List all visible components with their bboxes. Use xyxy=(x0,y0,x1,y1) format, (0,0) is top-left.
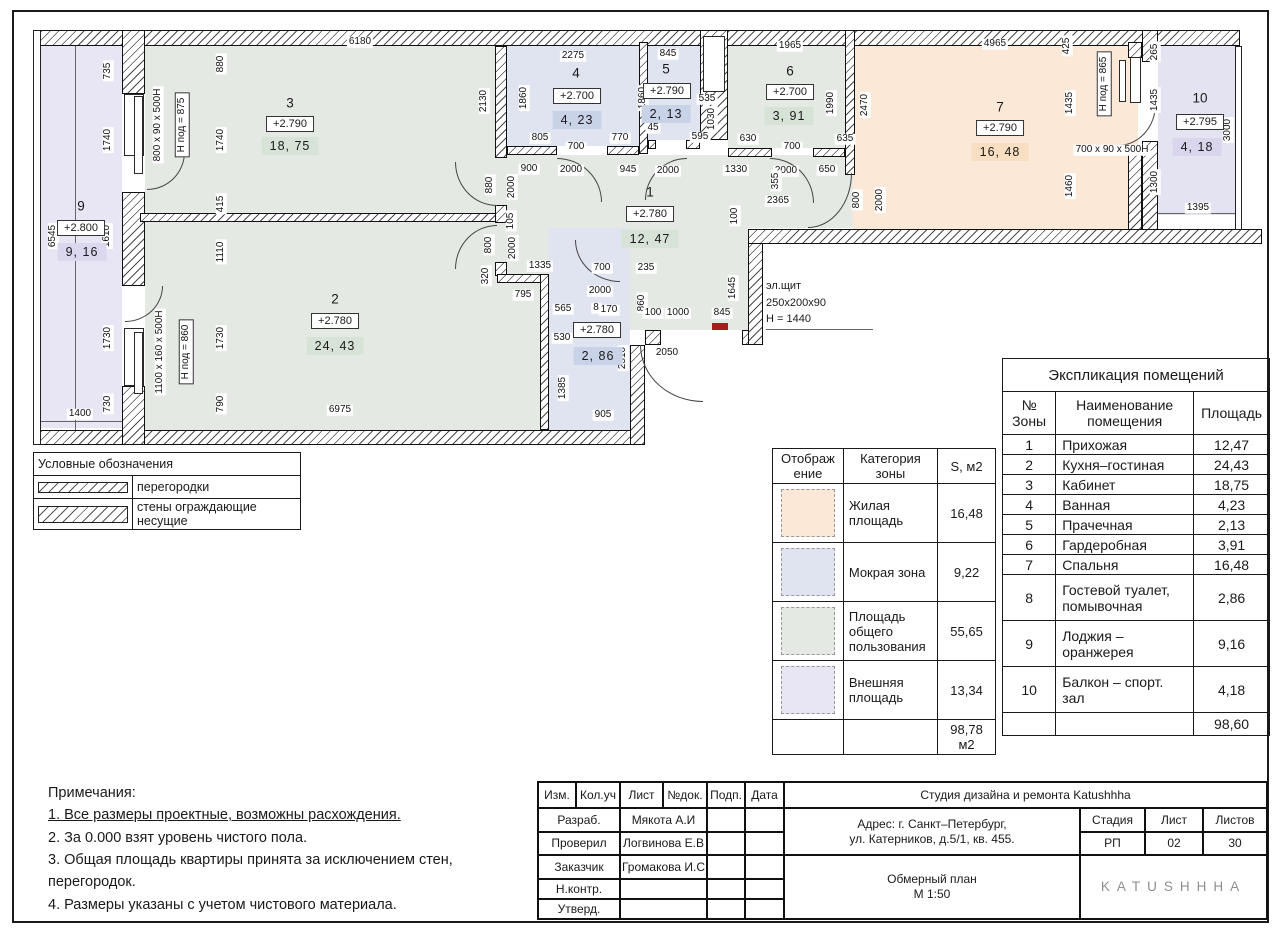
titleblock-stage-value: 30 xyxy=(1203,832,1267,855)
window xyxy=(1130,57,1141,103)
zone-swatch-living xyxy=(781,489,835,537)
dim-label: 770 xyxy=(610,133,631,144)
window xyxy=(134,332,143,394)
dim-label: 1460 xyxy=(1065,173,1076,199)
dim-label: 2000 xyxy=(655,166,681,177)
dim-label: 905 xyxy=(593,410,614,421)
dim-label: 1740 xyxy=(103,127,114,153)
window xyxy=(134,96,143,174)
electrical-shield-mark xyxy=(712,323,728,330)
explication-row: 9Лоджия – оранжерея9,16 xyxy=(1003,621,1270,667)
dim-label: 945 xyxy=(618,165,639,176)
zone-table-row: Мокрая зона9,22 xyxy=(773,543,996,602)
dim-label: 1965 xyxy=(777,41,803,52)
dim-label: 1395 xyxy=(1185,203,1211,214)
explication-row: 7Спальня16,48 xyxy=(1003,555,1270,575)
zone-table-cell: Площадь общего пользования xyxy=(843,602,937,661)
wall xyxy=(1128,42,1142,58)
titleblock-role-label: Проверил xyxy=(538,832,620,855)
wall xyxy=(33,30,1240,46)
notes-title: Примечания: xyxy=(48,782,488,804)
zone-table-cell xyxy=(773,661,844,720)
room-8-area: 2, 86 xyxy=(574,347,623,365)
dim-label: 1110 xyxy=(216,240,227,265)
wall xyxy=(813,148,845,157)
titleblock-date-cell xyxy=(745,899,784,919)
dim-label: 1100 x 160 x 500H xyxy=(155,308,166,395)
dim-label: 800 x 90 x 500H xyxy=(153,87,164,164)
zone-table-cell xyxy=(773,484,844,543)
explication-row: 4Ванная4,23 xyxy=(1003,495,1270,515)
dim-label: 6975 xyxy=(327,405,353,416)
partition-hatch-sample xyxy=(38,482,128,493)
zone-table-row: Внешняя площадь13,34 xyxy=(773,661,996,720)
dim-label: 1000 xyxy=(665,308,691,319)
titleblock-role-label: Н.контр. xyxy=(538,879,620,899)
room-9-elevation: +2.800 xyxy=(57,220,105,236)
dim-label: 900 xyxy=(519,164,540,175)
dim-label: 170 xyxy=(599,305,620,316)
dim-label: 1730 xyxy=(103,325,114,351)
titleblock-col-header: Дата xyxy=(745,782,784,808)
dim-label: 735 xyxy=(103,61,114,82)
wall xyxy=(845,30,855,175)
dim-label: 530 xyxy=(552,333,573,344)
dim-label: 425 xyxy=(1062,36,1073,57)
titleblock-col-header: Подп. xyxy=(707,782,745,808)
glazing-wall xyxy=(33,30,41,445)
explication-row: 8Гостевой туалет, помывочная2,86 xyxy=(1003,575,1270,621)
dim-label: 1740 xyxy=(216,127,227,153)
dim-label: 2000 xyxy=(587,286,613,297)
room-5-area: 2, 13 xyxy=(642,105,691,123)
dim-label: 1860 xyxy=(519,85,530,111)
legend-item-label: перегородки xyxy=(133,476,301,499)
wall xyxy=(507,146,557,155)
zone-table-cell: Мокрая зона xyxy=(843,543,937,602)
dim-label: 2000 xyxy=(875,187,886,213)
zone-table-cell: 55,65 xyxy=(938,602,996,661)
wall xyxy=(645,330,661,345)
zone-table-cell: 13,34 xyxy=(938,661,996,720)
titleblock-stage-header: Лист xyxy=(1145,808,1203,832)
dim-label: 100 xyxy=(643,308,664,319)
wall xyxy=(607,146,639,155)
thin-line xyxy=(75,46,76,430)
titleblock-person-name: Логвинова Е.В xyxy=(620,832,707,855)
room-1-area: 12, 47 xyxy=(622,230,679,248)
titleblock-col-header: Кол.уч xyxy=(576,782,620,808)
titleblock-person-name xyxy=(620,879,707,899)
room-8-elevation: +2.780 xyxy=(573,322,621,338)
room-4-number: 4 xyxy=(572,66,580,81)
legend-title: Условные обозначения xyxy=(34,453,301,476)
zone-table-row: Жилая площадь16,48 xyxy=(773,484,996,543)
zone-table-cell: Жилая площадь xyxy=(843,484,937,543)
explication-row: 5Прачечная2,13 xyxy=(1003,515,1270,535)
dim-label: 2275 xyxy=(560,51,586,62)
titleblock-role-label: Заказчик xyxy=(538,855,620,879)
titleblock-stage-value: РП xyxy=(1080,832,1145,855)
dim-label: 650 xyxy=(817,165,838,176)
room-6-area: 3, 91 xyxy=(765,107,814,125)
dim-label: 795 xyxy=(513,290,534,301)
explication-header: №ЗоныНаименованиепомещенияПлощадь xyxy=(1003,392,1270,435)
room-5-elevation: +2.790 xyxy=(643,83,691,99)
wall xyxy=(748,229,1262,244)
room-3-area: 18, 75 xyxy=(262,137,319,155)
titleblock-person-name: Громакова И.С xyxy=(620,855,707,879)
dim-label: 1645 xyxy=(728,275,739,301)
dim-label: 1435 xyxy=(1065,90,1076,116)
room-7-number: 7 xyxy=(996,100,1004,115)
dim-label: 2000 xyxy=(508,235,519,261)
room-7-area: 16, 48 xyxy=(972,143,1029,161)
dim-label: 1330 xyxy=(723,165,749,176)
titleblock-sign-cell xyxy=(707,879,745,899)
zone-table-header: Отображ ение xyxy=(773,449,844,484)
dim-label: 2000 xyxy=(507,174,518,200)
dim-label: 45 xyxy=(645,123,660,134)
titleblock-date-cell xyxy=(745,879,784,899)
wall xyxy=(140,213,503,222)
wall xyxy=(748,230,763,345)
zone-table-header: S, м2 xyxy=(938,449,996,484)
thin-line xyxy=(41,421,122,422)
room-10-area: 4, 18 xyxy=(1173,138,1222,156)
glazing-wall xyxy=(1235,46,1242,230)
titleblock-col-header: Изм. xyxy=(538,782,576,808)
titleblock-date-cell xyxy=(745,855,784,879)
room-4-area: 4, 23 xyxy=(553,111,602,129)
dim-label: 355 xyxy=(771,171,782,192)
zone-swatch-external xyxy=(781,666,835,714)
room-7-fill xyxy=(853,46,1138,229)
dim-label: Н под = 875 xyxy=(175,93,190,158)
electrical-shield-annotation: эл.щит250x200x90Н = 1440 xyxy=(766,278,826,328)
wall xyxy=(122,192,145,286)
dim-label: Н под = 865 xyxy=(1097,52,1112,117)
explication-row: 2Кухня–гостиная24,43 xyxy=(1003,455,1270,475)
titleblock-address: Адрес: г. Санкт–Петербург,ул. Катерников… xyxy=(784,808,1080,855)
titleblock-role-label: Разраб. xyxy=(538,808,620,832)
explication-row: 6Гардеробная3,91 xyxy=(1003,535,1270,555)
thin-line xyxy=(766,329,873,330)
zone-category-table: Отображ ениеКатегория зоныS, м2Жилая пло… xyxy=(772,448,996,755)
room-3-number: 3 xyxy=(286,96,294,111)
dim-label: 2050 xyxy=(654,348,680,359)
titleblock-stage-value: 02 xyxy=(1145,832,1203,855)
note-item: 1. Все размеры проектные, возможны расхо… xyxy=(48,804,488,826)
zone-total: 98,78 м2 xyxy=(938,720,996,755)
dim-label: 235 xyxy=(636,263,657,274)
dim-label: 3000 xyxy=(1223,117,1234,143)
dim-label: 700 xyxy=(592,263,613,274)
legend-item-label: стены ограждающие несущие xyxy=(133,499,301,530)
room-4-elevation: +2.700 xyxy=(553,88,601,104)
dim-label: 635 xyxy=(835,134,856,145)
dim-label: 1730 xyxy=(216,325,227,351)
note-item: 4. Размеры указаны с учетом чистового ма… xyxy=(48,894,488,916)
dim-label: 1400 xyxy=(67,409,93,420)
dim-label: 100 xyxy=(730,206,741,227)
titleblock-company: Студия дизайна и ремонта Katushhha xyxy=(784,782,1267,808)
wall xyxy=(122,386,145,445)
explication-row: 3Кабинет18,75 xyxy=(1003,475,1270,495)
dim-label: 800 xyxy=(484,235,495,256)
dim-label: 4965 xyxy=(982,39,1008,50)
bearing-wall-hatch-sample xyxy=(38,506,128,523)
titleblock-stage-header: Листов xyxy=(1203,808,1267,832)
wall xyxy=(495,46,507,158)
titleblock-col-header: Лист xyxy=(620,782,663,808)
dim-label: 320 xyxy=(481,266,492,287)
titleblock-doc-title: Обмерный планМ 1:50 xyxy=(784,855,1080,919)
dim-label: Н под = 860 xyxy=(179,320,194,385)
dim-label: 880 xyxy=(485,175,496,196)
room-1-elevation: +2.780 xyxy=(626,206,674,222)
window xyxy=(1119,60,1126,102)
dim-label: 105 xyxy=(506,211,517,232)
titleblock-date-cell xyxy=(745,808,784,832)
dim-label: 6180 xyxy=(347,37,373,48)
room-5-number: 5 xyxy=(662,62,670,77)
titleblock-person-name xyxy=(620,899,707,919)
dim-label: 700 xyxy=(566,142,587,153)
dim-label: 630 xyxy=(738,134,759,145)
room-9-number: 9 xyxy=(77,199,85,214)
dim-label: 2000 xyxy=(558,165,584,176)
zone-table-cell xyxy=(773,602,844,661)
wall xyxy=(540,274,549,430)
titleblock-sign-cell xyxy=(707,899,745,919)
zone-table-cell: 16,48 xyxy=(938,484,996,543)
dim-label: 1385 xyxy=(558,375,569,401)
dim-label: 2470 xyxy=(860,92,871,118)
note-item: 2. За 0.000 взят уровень чистого пола. xyxy=(48,827,488,849)
dim-label: 790 xyxy=(216,394,227,415)
dim-label: 1435 xyxy=(1150,87,1161,113)
dim-label: 265 xyxy=(1150,42,1161,63)
titleblock-stage-header: Стадия xyxy=(1080,808,1145,832)
dim-label: 805 xyxy=(530,133,551,144)
room-10-number: 10 xyxy=(1192,91,1207,106)
note-item: 3. Общая площадь квартиры принята за иск… xyxy=(48,849,488,894)
dim-label: 845 xyxy=(712,308,733,319)
explication-row: 1Прихожая12,47 xyxy=(1003,435,1270,455)
room-2-elevation: +2.780 xyxy=(311,313,359,329)
room-6-elevation: +2.700 xyxy=(766,84,814,100)
wall xyxy=(728,148,772,157)
dim-label: 535 xyxy=(697,94,718,105)
titleblock-sign-cell xyxy=(707,855,745,879)
dim-label: 1335 xyxy=(527,261,553,272)
dim-label: 700 x 90 x 500Н xyxy=(1074,145,1151,156)
room-3-elevation: +2.790 xyxy=(266,116,314,132)
dim-label: 1030 xyxy=(707,106,718,132)
explication-table: Экспликация помещений№ЗоныНаименованиепо… xyxy=(1002,358,1270,736)
explication-row: 10Балкон – спорт. зал4,18 xyxy=(1003,667,1270,713)
notes-block: Примечания: 1. Все размеры проектные, во… xyxy=(48,782,488,916)
dim-label: 1300 xyxy=(1150,169,1161,195)
room-2-area: 24, 43 xyxy=(307,337,364,355)
room-10-elevation: +2.795 xyxy=(1176,114,1224,130)
dim-label: 2130 xyxy=(479,88,490,114)
zone-table-header: Категория зоны xyxy=(843,449,937,484)
dim-label: 880 xyxy=(216,54,227,75)
zone-table-cell: Внешняя площадь xyxy=(843,661,937,720)
drawing-sheet: 6180880735174017404156545161011101730173… xyxy=(0,0,1280,932)
wall xyxy=(648,140,656,149)
dim-label: 700 xyxy=(782,142,803,153)
room-1-number: 1 xyxy=(646,185,654,200)
dim-label: 2365 xyxy=(765,196,791,207)
zone-table-cell: 9,22 xyxy=(938,543,996,602)
wall xyxy=(122,30,145,94)
explication-title: Экспликация помещений xyxy=(1003,359,1270,392)
dim-label: 595 xyxy=(690,132,711,143)
zone-table-row: Площадь общего пользования55,65 xyxy=(773,602,996,661)
dim-label: 415 xyxy=(216,194,227,215)
titleblock-col-header: №док. xyxy=(663,782,707,808)
legend-table: Условные обозначения перегородки стены о… xyxy=(33,452,301,530)
titleblock-date-cell xyxy=(745,832,784,855)
room-7-elevation: +2.790 xyxy=(976,120,1024,136)
dim-label: 565 xyxy=(553,304,574,315)
room-9-area: 9, 16 xyxy=(58,243,107,261)
shaft xyxy=(703,36,725,92)
room-6-number: 6 xyxy=(786,64,794,79)
explication-total: 98,60 xyxy=(1194,713,1270,736)
dim-label: 845 xyxy=(658,49,679,60)
title-block: Изм.Кол.учЛист№док.Подп.ДатаРазраб.Мякот… xyxy=(537,781,1268,920)
zone-swatch-common xyxy=(781,607,835,655)
room-2-number: 2 xyxy=(331,292,339,307)
titleblock-logo: KATUSHHHA xyxy=(1080,855,1267,919)
titleblock-role-label: Утверд. xyxy=(538,899,620,919)
wall xyxy=(1128,146,1142,230)
zone-table-cell xyxy=(773,543,844,602)
zone-swatch-wet xyxy=(781,548,835,596)
titleblock-sign-cell xyxy=(707,832,745,855)
dim-label: 1990 xyxy=(826,90,837,116)
dim-label: 800 xyxy=(852,190,863,211)
titleblock-sign-cell xyxy=(707,808,745,832)
titleblock-person-name: Мякота А.И xyxy=(620,808,707,832)
dim-label: 730 xyxy=(103,394,114,415)
room-3-fill xyxy=(145,46,495,214)
